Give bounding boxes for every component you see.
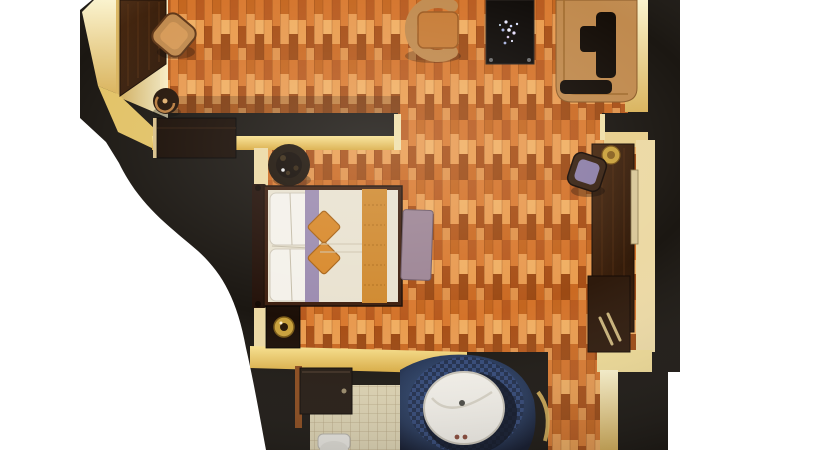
- floor-plan-canvas: [0, 0, 840, 450]
- floor-plan-screenshot: [0, 0, 840, 450]
